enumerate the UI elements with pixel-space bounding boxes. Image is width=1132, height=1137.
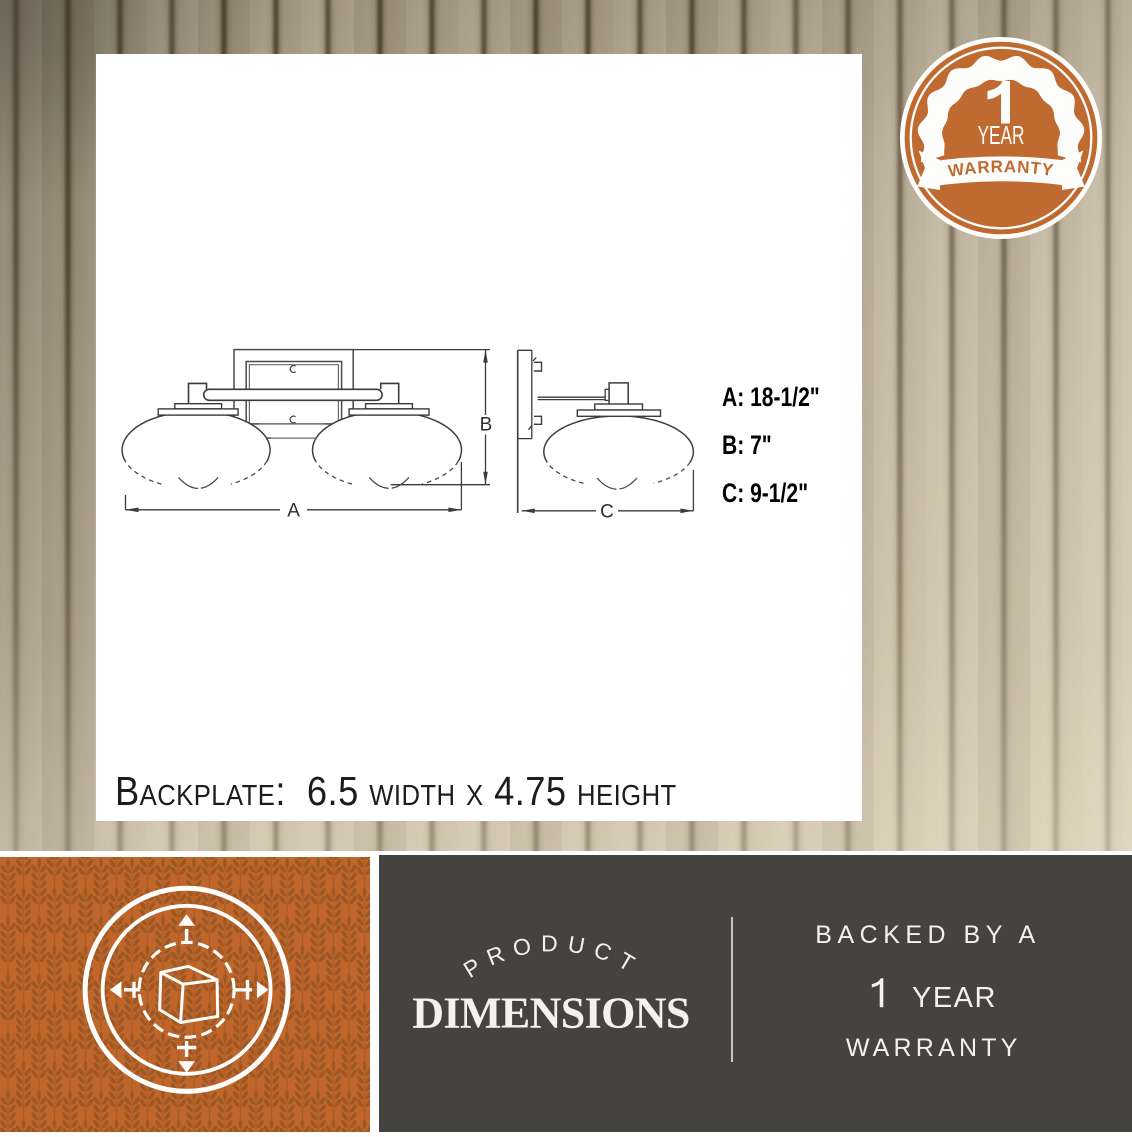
svg-text:B: B	[480, 415, 493, 436]
svg-text:PRODUCT: PRODUCT	[459, 930, 647, 983]
svg-text:YEAR: YEAR	[978, 120, 1025, 150]
svg-text:C: C	[600, 501, 614, 522]
svg-text:DIMENSIONS: DIMENSIONS	[412, 989, 690, 1038]
svg-text:A: A	[287, 500, 300, 521]
